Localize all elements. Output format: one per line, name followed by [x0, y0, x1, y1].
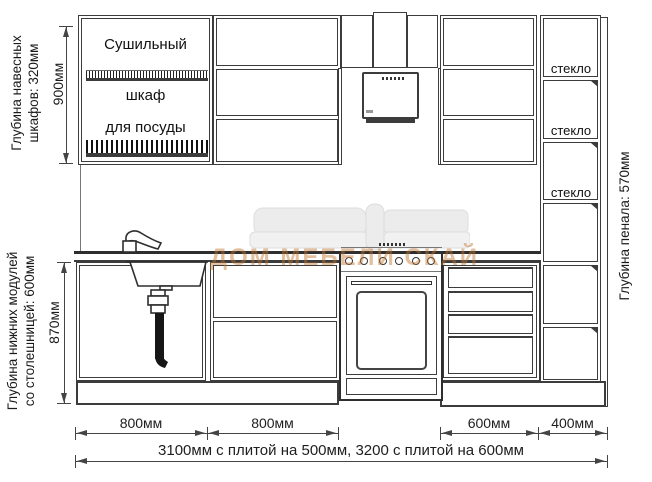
arr-seg2-r	[326, 430, 336, 436]
wall-cabinet-middle-shelf-2	[216, 115, 338, 120]
dish-rack-lower	[86, 140, 208, 154]
dim-seg-1: 800мм	[75, 415, 207, 431]
dim-900-tick-bottom	[59, 163, 73, 164]
sink-and-siphon	[110, 228, 210, 370]
dim-seg-2: 800мм	[207, 415, 338, 431]
wall-depth-line1: Глубина навесных	[8, 14, 25, 172]
dim-seg-4: 400мм	[538, 415, 607, 431]
hood-top-door-right	[407, 15, 438, 68]
tall-depth-annotation: Глубина пенала: 570мм	[617, 140, 632, 312]
wall-cabinet-right	[440, 15, 537, 165]
plinth-right	[440, 381, 606, 407]
kitchen-elevation-drawing: Сушильный шкаф для посуды стекло стекло …	[0, 0, 652, 482]
dim-tick-1	[75, 427, 76, 440]
glass-label-2: стекло	[542, 123, 600, 138]
stove-drawer	[346, 378, 437, 395]
hood-top-door-middle	[373, 12, 407, 68]
wall-cabinet-middle	[213, 15, 341, 165]
tall-shelf-5-edge	[591, 328, 598, 334]
dish-rack-lower-base	[86, 153, 208, 157]
tall-shelf-3	[543, 199, 598, 204]
wall-depth-annotation: Глубина навесных шкафов: 320мм	[8, 14, 42, 172]
base-depth-line2: со столешницей: 600мм	[21, 232, 38, 430]
dim-tick-4	[440, 427, 441, 440]
hood-top-door-left	[341, 15, 373, 68]
plinth-left	[76, 381, 339, 405]
glass-label-1: стекло	[542, 61, 600, 76]
dish-rack-upper-base	[86, 78, 208, 81]
tall-cabinet-side	[600, 17, 608, 407]
tall-shelf-1-edge	[591, 81, 598, 87]
tall-shelf-1	[543, 76, 598, 81]
oven-handle	[351, 281, 432, 285]
arr-seg4-l	[540, 430, 550, 436]
tall-shelf-4	[543, 261, 598, 266]
tall-shelf-2-edge	[591, 143, 598, 149]
drawer-4	[448, 336, 533, 374]
dim-900-line	[66, 27, 67, 163]
dim-tick-6	[607, 427, 608, 440]
tall-shelf-5	[543, 323, 598, 328]
dim-total-arr-l	[77, 458, 87, 464]
arr-seg1-r	[195, 430, 205, 436]
wall-cabinet-middle-shelf-1	[216, 65, 338, 70]
dim-870-line	[64, 263, 65, 403]
dim-row1-line-b	[440, 433, 607, 434]
hood-badge	[366, 110, 373, 113]
arr-seg3-l	[442, 430, 452, 436]
dim-900-arrow-bottom	[63, 153, 69, 163]
dim-900-tick-top	[59, 26, 73, 27]
arr-seg4-r	[595, 430, 605, 436]
wall-cabinet-right-shelf-1	[443, 65, 534, 70]
hood-side-left	[338, 68, 342, 165]
drawer-3	[448, 314, 533, 334]
drawer-2	[448, 291, 533, 312]
drying-cabinet-label-1: Сушильный	[88, 36, 203, 53]
wall-edge-line	[80, 165, 81, 252]
wall-depth-line2: шкафов: 320мм	[25, 14, 42, 172]
dim-total: 3100мм с плитой на 500мм, 3200 с плитой …	[75, 442, 607, 459]
dim-total-tick-l	[75, 455, 76, 468]
tall-shelf-2	[543, 138, 598, 143]
drying-cabinet-label-3: для посуды	[88, 119, 203, 136]
glass-label-3: стекло	[542, 185, 600, 200]
hood-buttons	[382, 77, 404, 80]
dim-tick-3	[338, 427, 339, 440]
dim-total-tick-r	[607, 455, 608, 468]
base-cabinet-2-divider	[213, 317, 337, 322]
base-depth-line1: Глубина нижних модулей	[4, 232, 21, 430]
base-depth-annotation: Глубина нижних модулей со столешницей: 6…	[4, 232, 38, 430]
dim-870-tick-bottom	[57, 403, 71, 404]
watermark-text: ДОМ МЕБЕЛИ СКАЙ	[210, 244, 460, 272]
dim-seg-3: 600мм	[440, 415, 538, 431]
dim-tick-5	[538, 427, 539, 440]
wall-height-annotation: 900мм	[50, 28, 66, 140]
dim-870-arrow-bottom	[61, 393, 67, 403]
tall-shelf-4-edge	[591, 266, 598, 272]
hood-vent	[366, 119, 415, 123]
dim-total-arr-r	[595, 458, 605, 464]
wall-cabinet-right-shelf-2	[443, 115, 534, 120]
arr-seg3-r	[526, 430, 536, 436]
dim-tick-2	[207, 427, 208, 440]
dim-total-line	[75, 461, 607, 462]
arr-seg2-l	[209, 430, 219, 436]
base-height-annotation: 870мм	[46, 260, 62, 385]
arr-seg1-l	[77, 430, 87, 436]
oven-window	[356, 291, 427, 370]
drying-cabinet-label-2: шкаф	[88, 87, 203, 104]
tall-shelf-3-edge	[591, 204, 598, 210]
